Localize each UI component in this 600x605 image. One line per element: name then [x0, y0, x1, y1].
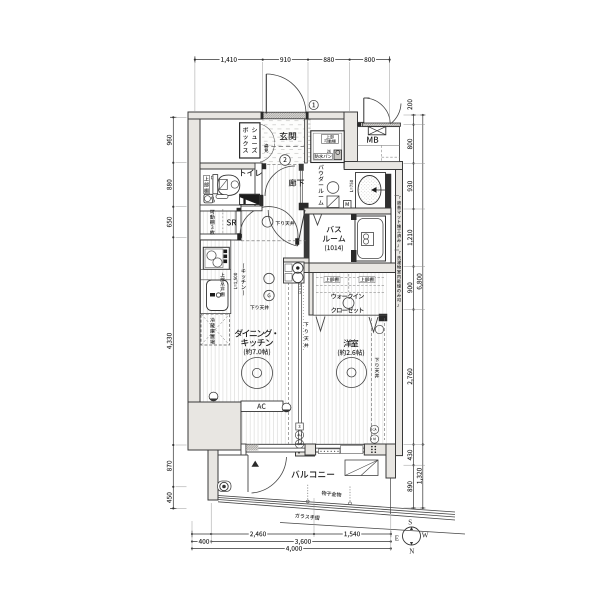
svg-text:S: S: [408, 518, 412, 526]
svg-text:E: E: [395, 535, 399, 543]
svg-text:W: W: [422, 531, 429, 539]
svg-text:N: N: [409, 547, 414, 555]
